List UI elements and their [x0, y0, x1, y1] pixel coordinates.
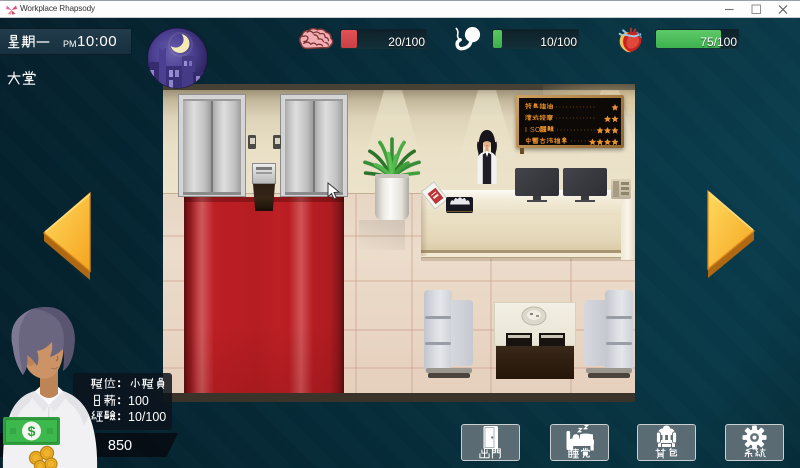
svg-text:I: I — [525, 127, 527, 134]
svg-text:O: O — [535, 127, 541, 134]
svg-text:$: $ — [28, 423, 36, 439]
